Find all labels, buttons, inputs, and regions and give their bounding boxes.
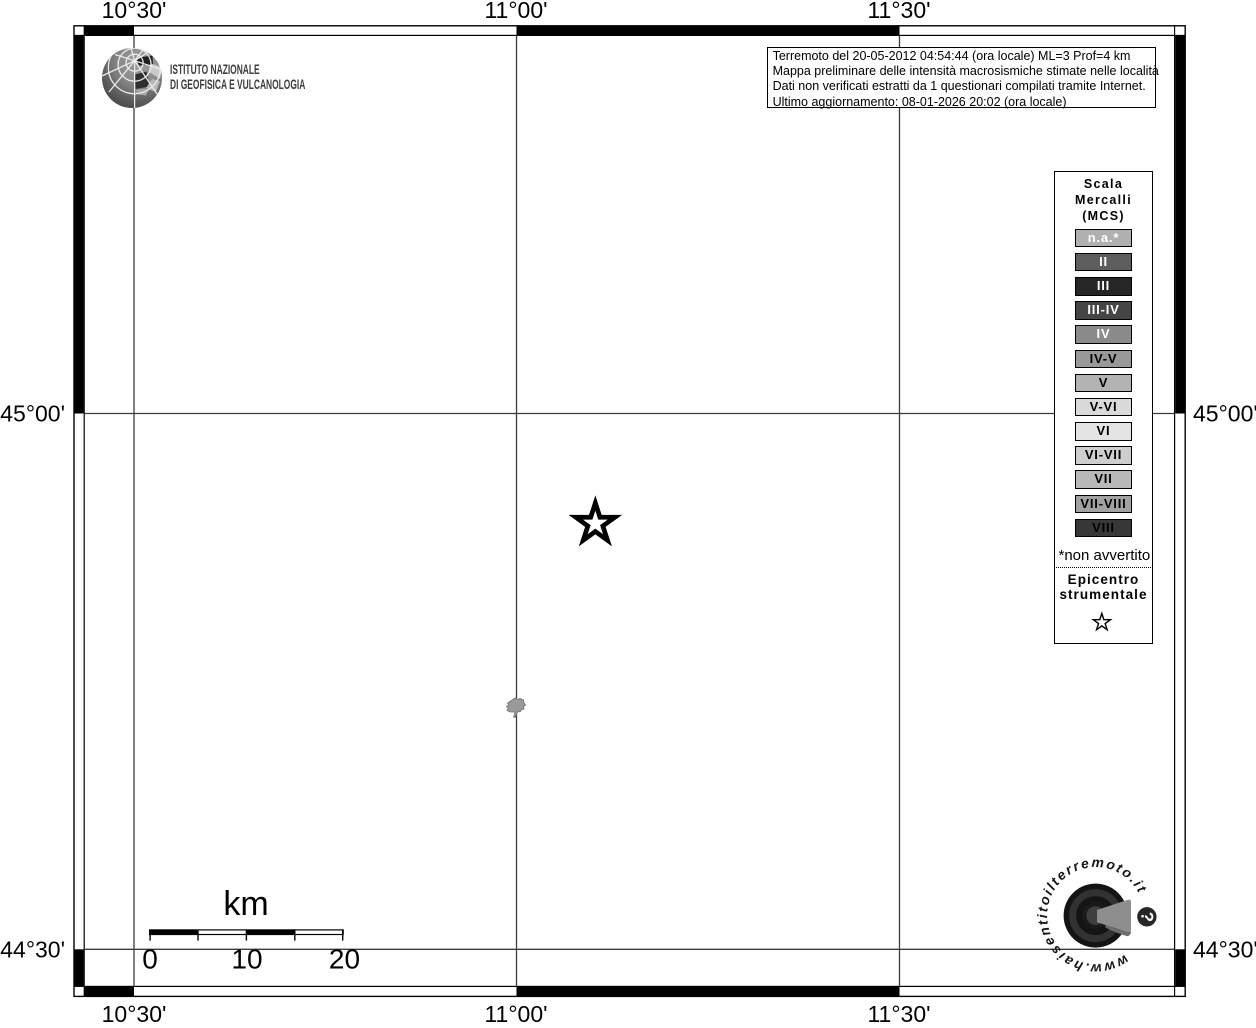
svg-text:0: 0 [142, 944, 158, 975]
svg-text:10: 10 [231, 944, 262, 975]
svg-text:km: km [223, 885, 268, 923]
svg-text:?: ? [1137, 911, 1156, 922]
svg-text:20: 20 [329, 944, 360, 975]
